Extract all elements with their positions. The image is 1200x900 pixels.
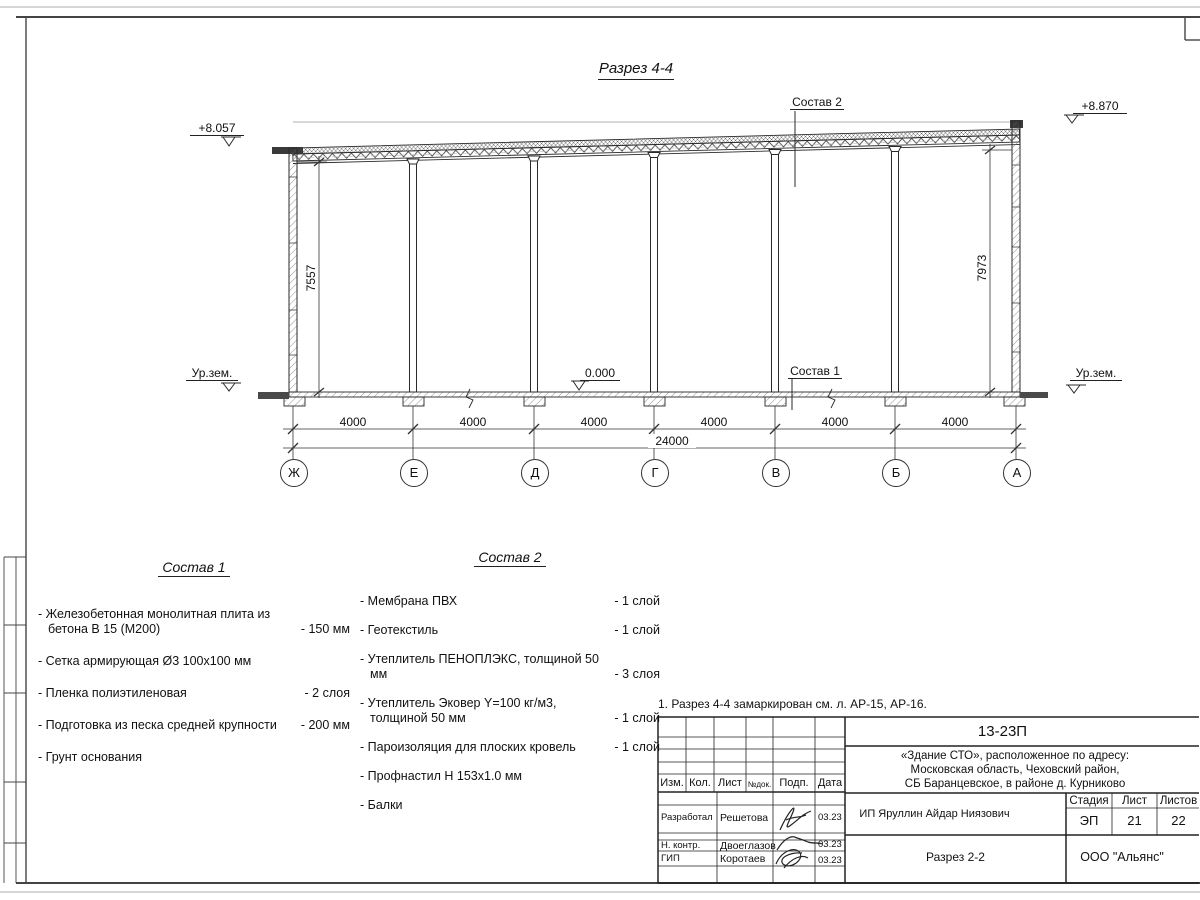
leader-label-sostav1: Состав 1 — [788, 364, 842, 379]
axis-bubble: В — [762, 459, 790, 487]
material-value: - 1 слой — [614, 711, 660, 726]
material-value: - 1 слой — [614, 623, 660, 638]
rev-col-ndok: №док. — [746, 780, 773, 789]
sostav1-list: Состав 1 - Железобетонная монолитная пли… — [38, 560, 350, 765]
material-name: - Геотекстиль — [360, 623, 606, 638]
rev-col-list: Лист — [714, 777, 746, 790]
floor-slab — [284, 389, 1025, 408]
material-value: - 1 слой — [614, 594, 660, 609]
dim-span: 4000 — [574, 415, 614, 429]
sheets-value: 22 — [1157, 814, 1200, 829]
material-value: - 200 мм — [301, 718, 350, 733]
page-title: Разрез 4-4 — [598, 60, 674, 80]
material-name: - Балки — [360, 798, 606, 813]
axis-bubble: Ж — [280, 459, 308, 487]
signer-name: Коротаев — [720, 853, 765, 865]
sheet-title: Разрез 2-2 — [845, 851, 1066, 865]
columns — [407, 147, 901, 393]
material-name: - Утеплитель ПЕНОПЛЭКС, толщиной 50 мм — [360, 652, 606, 682]
dim-left-height: 7557 — [304, 258, 318, 298]
stage-header: Стадия — [1066, 795, 1112, 808]
rev-col-data: Дата — [815, 777, 845, 790]
note-text: 1. Разрез 4-4 замаркирован см. л. АР-15,… — [658, 697, 927, 711]
horizontal-dimensions — [283, 406, 1026, 459]
signer-role: Разработал — [661, 813, 713, 824]
material-name: - Утеплитель Эковер Y=100 кг/м3, толщино… — [360, 696, 606, 726]
signer-date: 03.23 — [818, 856, 842, 867]
material-name: - Пароизоляция для плоских кровель — [360, 740, 606, 755]
axis-bubble: А — [1003, 459, 1031, 487]
axis-bubble: Е — [400, 459, 428, 487]
right-wall — [1012, 121, 1020, 392]
object-description: «Здание СТО», расположенное по адресу: М… — [845, 749, 1185, 791]
doc-number: 13-23П — [845, 723, 1160, 740]
ground-strip-right — [1020, 392, 1048, 398]
ground-strip-left — [258, 392, 289, 399]
dim-right-height: 7973 — [975, 248, 989, 288]
roof-edge-cap-left — [272, 147, 303, 154]
material-name: - Сетка армирующая Ø3 100х100 мм — [38, 654, 296, 669]
rev-col-podp: Подп. — [773, 777, 815, 790]
company-name: ООО "Альянс" — [1066, 850, 1178, 864]
ground-level-right: Ур.зем. — [1070, 366, 1122, 381]
drawing-sheet: { "drawing": { "title": "Разрез 4-4", "e… — [0, 0, 1200, 900]
signature-razrabotal — [780, 808, 811, 830]
signer-date: 03.23 — [818, 813, 842, 824]
signer-name: Решетова — [720, 812, 768, 824]
axis-bubble: Г — [641, 459, 669, 487]
material-value: - 150 мм — [301, 622, 350, 637]
signer-name: Двоеглазов — [720, 840, 776, 852]
material-name: - Профнастил Н 153х1.0 мм — [360, 769, 606, 784]
signer-role: Н. контр. — [661, 841, 700, 852]
material-value: - 3 слоя — [615, 667, 660, 682]
building-section — [221, 111, 1086, 459]
material-name: - Пленка полиэтиленовая — [38, 686, 296, 701]
axis-bubble: Д — [521, 459, 549, 487]
material-value: - 1 слой — [614, 740, 660, 755]
sostav1-title: Состав 1 — [158, 560, 229, 577]
left-wall — [289, 148, 297, 392]
material-name: - Железобетонная монолитная плита из бет… — [38, 607, 296, 637]
sheet-header: Лист — [1112, 795, 1157, 808]
sostav2-title: Состав 2 — [474, 550, 545, 567]
sheet-value: 21 — [1112, 814, 1157, 829]
dim-span: 4000 — [815, 415, 855, 429]
material-name: - Мембрана ПВХ — [360, 594, 606, 609]
rev-col-kol: Кол. — [686, 777, 714, 790]
client-name: ИП Яруллин Айдар Ниязович — [847, 808, 1022, 821]
material-value: - 2 слоя — [305, 686, 350, 701]
ground-level-left: Ур.зем. — [186, 366, 238, 381]
signer-date: 03.23 — [818, 840, 842, 851]
dim-span: 4000 — [935, 415, 975, 429]
dim-total: 24000 — [648, 434, 696, 448]
leader-label-sostav2: Состав 2 — [790, 95, 844, 110]
dim-span: 4000 — [333, 415, 373, 429]
elevation-left: +8.057 — [190, 121, 244, 136]
elevation-right: +8.870 — [1073, 99, 1127, 114]
dim-span: 4000 — [453, 415, 493, 429]
dim-span: 4000 — [694, 415, 734, 429]
elevation-zero: 0.000 — [580, 366, 620, 381]
sheets-header: Листов — [1157, 795, 1200, 808]
rev-col-izm: Изм. — [658, 777, 686, 790]
signature-gip — [776, 850, 808, 868]
stage-value: ЭП — [1066, 814, 1112, 829]
axis-bubble: Б — [882, 459, 910, 487]
material-name: - Грунт основания — [38, 750, 296, 765]
sostav2-list: Состав 2 - Мембрана ПВХ- 1 слой - Геотек… — [360, 550, 660, 813]
signer-role: ГИП — [661, 854, 680, 865]
material-name: - Подготовка из песка средней крупности — [38, 718, 296, 733]
